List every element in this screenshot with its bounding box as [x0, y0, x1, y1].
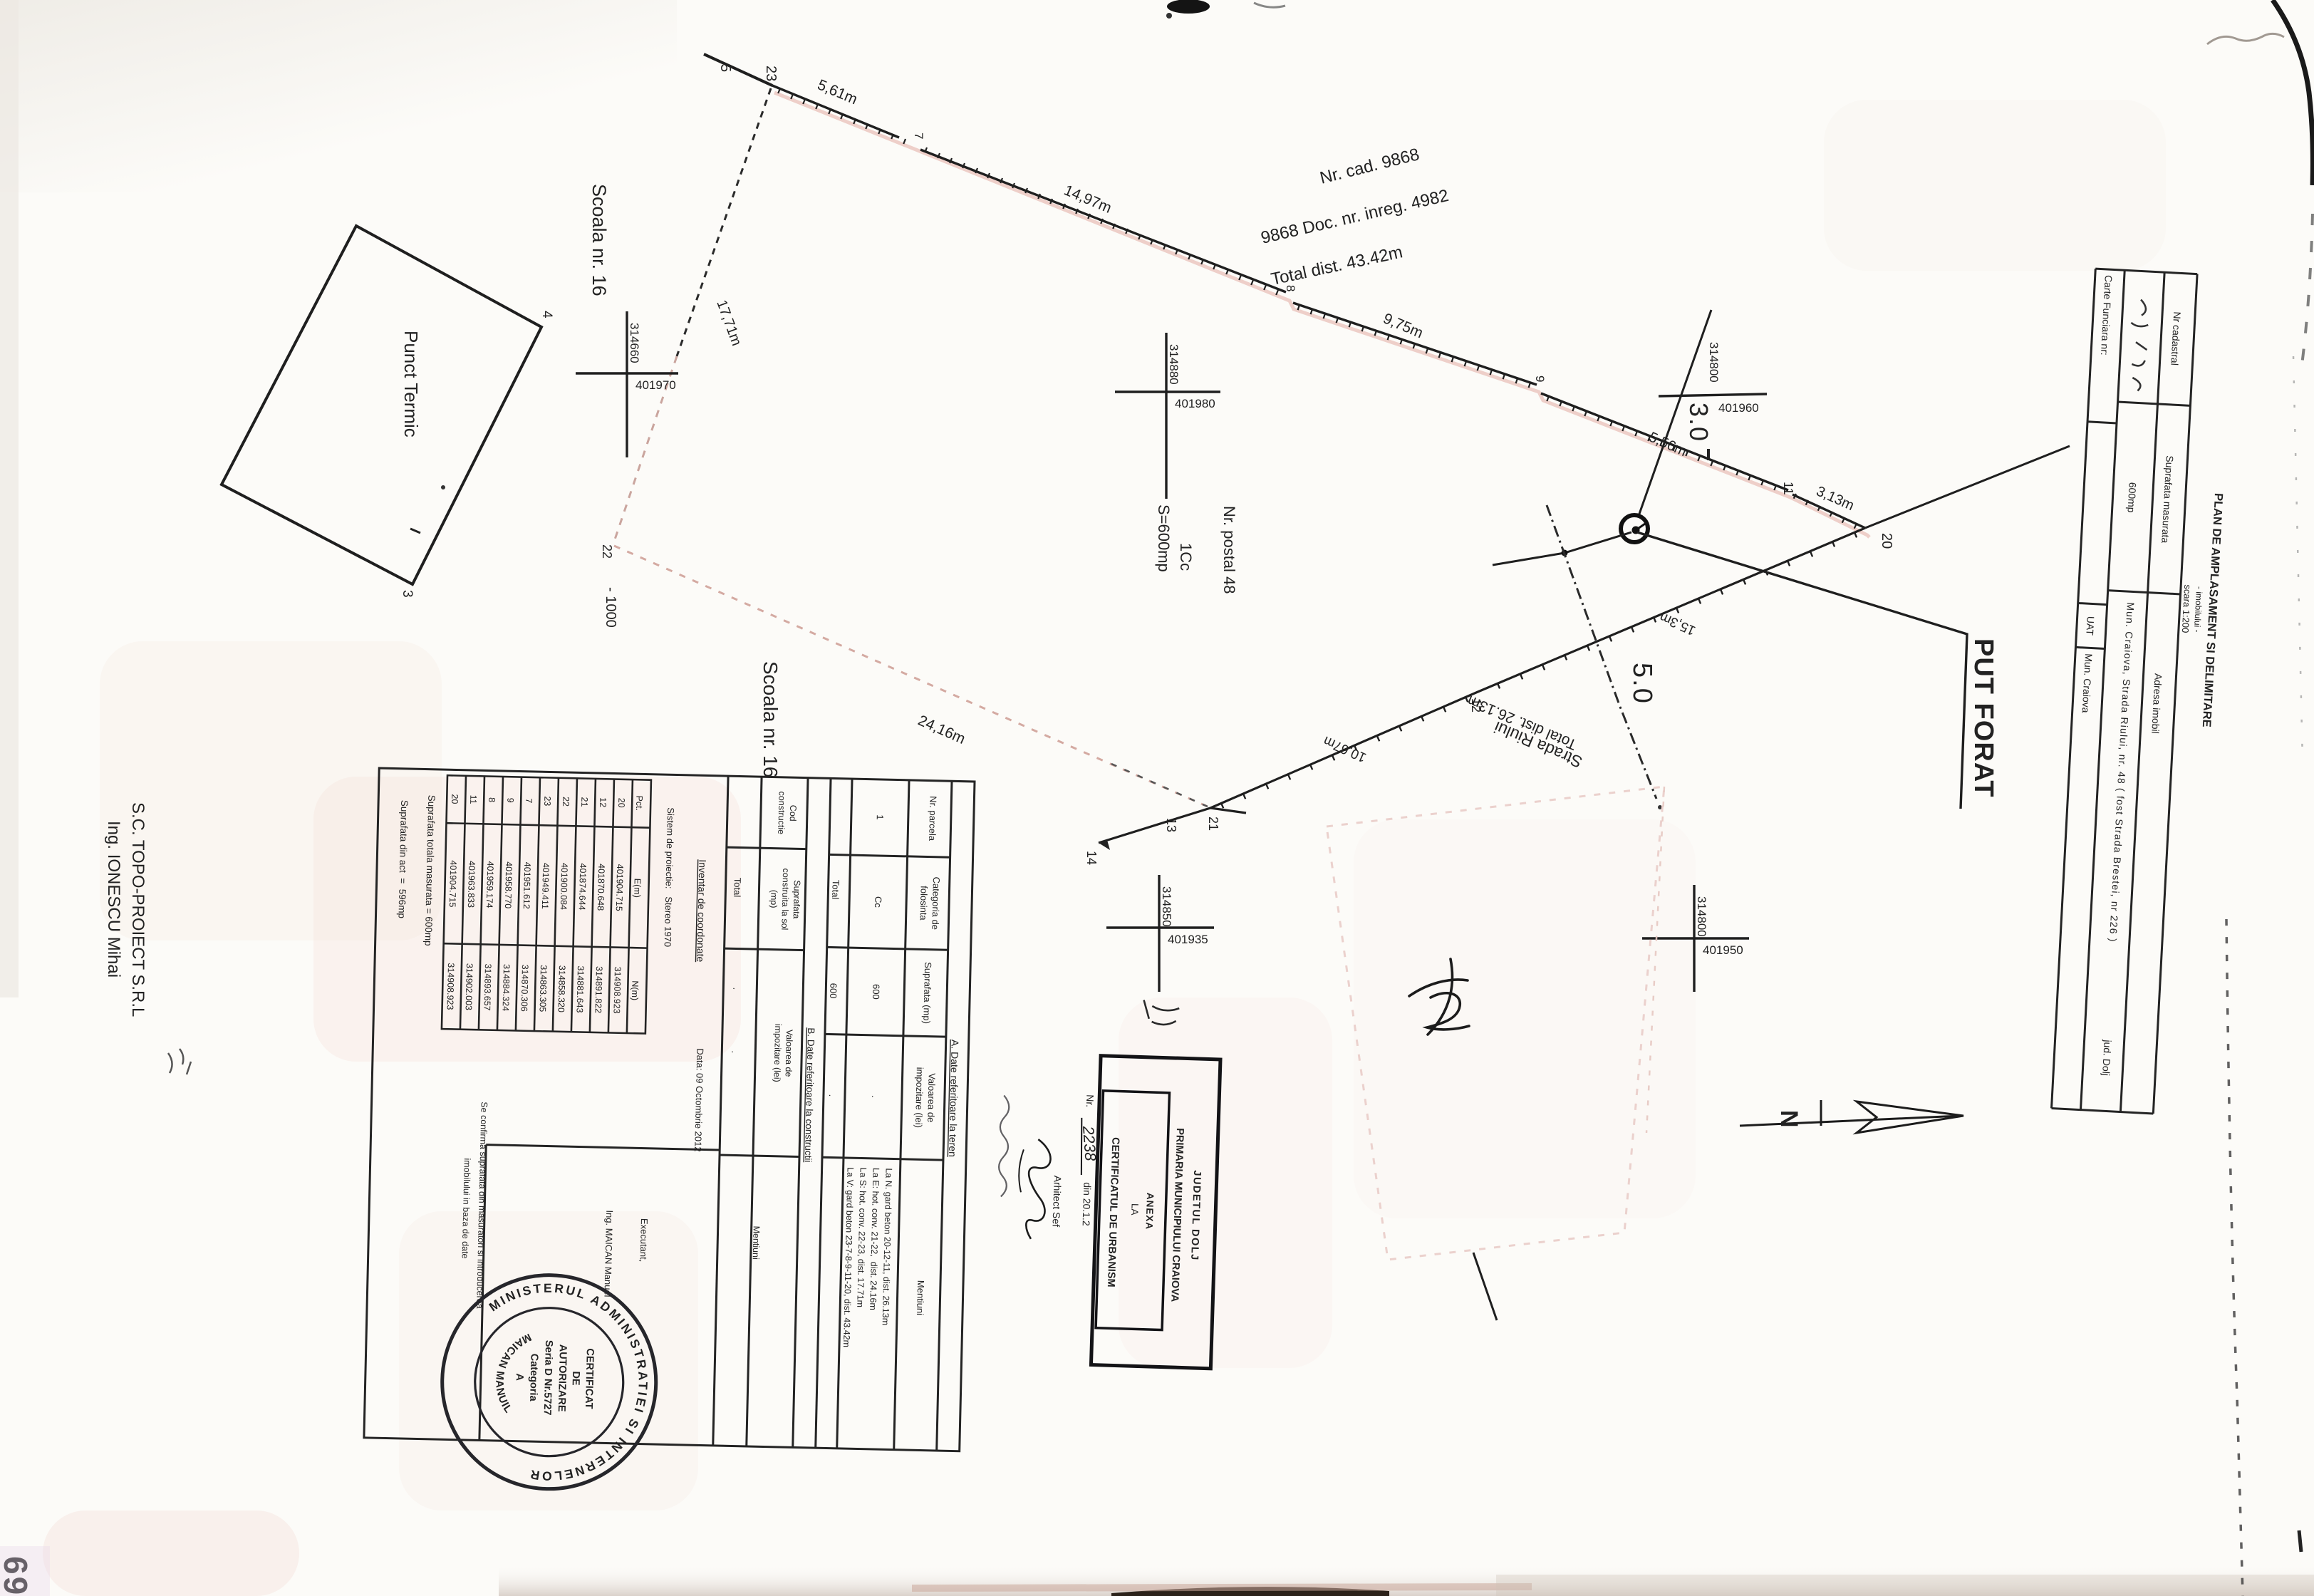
svg-text:7: 7 — [912, 133, 925, 139]
svg-text:Mentiuni: Mentiuni — [751, 1225, 762, 1260]
svg-text:.: . — [730, 1050, 740, 1053]
svg-text:314800: 314800 — [1707, 342, 1721, 383]
svg-text:Mentiuni: Mentiuni — [915, 1280, 926, 1316]
svg-text:401874.644: 401874.644 — [577, 863, 588, 910]
svg-text:Ing. IONESCU Mihai: Ing. IONESCU Mihai — [104, 821, 123, 978]
svg-text:impozitare (lei): impozitare (lei) — [772, 1024, 783, 1082]
svg-text:impozitare (lei): impozitare (lei) — [913, 1067, 925, 1129]
svg-text:314858.320: 314858.320 — [556, 965, 567, 1012]
svg-text:401950: 401950 — [1703, 943, 1743, 957]
svg-text:600: 600 — [871, 984, 881, 1000]
svg-text:314908.923: 314908.923 — [611, 967, 622, 1014]
svg-text:PUT FORAT: PUT FORAT — [1968, 638, 1998, 798]
svg-text:11: 11 — [468, 794, 478, 804]
svg-text:20: 20 — [1879, 533, 1894, 549]
svg-text:20: 20 — [616, 798, 626, 808]
svg-text:jud. Dolj: jud. Dolj — [2100, 1039, 2114, 1076]
svg-text:E(m): E(m) — [632, 879, 643, 898]
svg-text:Nr.: Nr. — [1084, 1094, 1096, 1107]
svg-text:401951.612: 401951.612 — [522, 862, 532, 909]
svg-text:Scoala nr. 16: Scoala nr. 16 — [588, 184, 610, 296]
svg-text:23: 23 — [763, 66, 779, 81]
svg-text:314870.306: 314870.306 — [519, 965, 530, 1012]
svg-text:Arhitect Sef: Arhitect Sef — [1051, 1175, 1064, 1227]
svg-text:Punct Termic: Punct Termic — [400, 331, 422, 437]
svg-text:S.C. TOPO-PROIECT S.R.L: S.C. TOPO-PROIECT S.R.L — [128, 802, 147, 1017]
svg-text:Valoarea de: Valoarea de — [925, 1073, 938, 1122]
svg-text:din 20.1.2: din 20.1.2 — [1081, 1182, 1094, 1226]
svg-text:N: N — [1775, 1110, 1802, 1128]
svg-text:construita la sol: construita la sol — [779, 868, 791, 930]
svg-text:.: . — [731, 988, 742, 990]
svg-text:Cc: Cc — [873, 896, 883, 908]
svg-text:20: 20 — [450, 794, 460, 804]
svg-text:- 1000: - 1000 — [603, 587, 618, 628]
svg-text:.: . — [827, 1094, 838, 1097]
svg-text:Categoria: Categoria — [527, 1354, 540, 1402]
svg-text:314902.003: 314902.003 — [464, 963, 474, 1010]
svg-text:(mp): (mp) — [769, 890, 779, 908]
svg-text:S=600mp: S=600mp — [1155, 504, 1173, 572]
svg-text:401960: 401960 — [1718, 401, 1759, 415]
svg-text:401959.174: 401959.174 — [484, 861, 495, 908]
svg-text:AUTORIZARE: AUTORIZARE — [556, 1344, 569, 1412]
svg-text:Suprafata: Suprafata — [792, 880, 802, 919]
svg-text:Nr. parcela: Nr. parcela — [927, 796, 938, 841]
svg-text:314908.923: 314908.923 — [445, 963, 456, 1010]
svg-text:13: 13 — [1164, 818, 1178, 832]
svg-text:Pct.: Pct. — [634, 795, 644, 811]
svg-text:14: 14 — [1084, 851, 1099, 865]
svg-text:401935: 401935 — [1168, 933, 1208, 946]
svg-text:CERTIFICAT: CERTIFICAT — [583, 1348, 596, 1409]
svg-text:8: 8 — [487, 797, 497, 802]
svg-text:9: 9 — [1533, 375, 1547, 382]
svg-text:3: 3 — [400, 590, 415, 598]
svg-text:11: 11 — [1781, 482, 1795, 495]
svg-text:401904.715: 401904.715 — [614, 864, 625, 911]
svg-text:21: 21 — [1206, 817, 1220, 831]
svg-text:Inventar de coordonate: Inventar de coordonate — [695, 859, 708, 963]
svg-text:401900.084: 401900.084 — [559, 863, 569, 910]
svg-text:ANEXA: ANEXA — [1143, 1193, 1156, 1230]
svg-text:314891.822: 314891.822 — [593, 966, 603, 1013]
svg-text:Ing. MAICAN Manuel: Ing. MAICAN Manuel — [602, 1210, 615, 1297]
svg-text:22: 22 — [561, 797, 571, 807]
svg-text:401963.833: 401963.833 — [466, 861, 477, 908]
svg-text:3.0: 3.0 — [1684, 403, 1713, 442]
svg-text:LA: LA — [1129, 1203, 1141, 1216]
svg-text:22: 22 — [600, 544, 614, 559]
svg-text:314850: 314850 — [1160, 886, 1173, 927]
svg-text:Suprafata (mp): Suprafata (mp) — [921, 962, 933, 1024]
svg-text:Nr. postal 48: Nr. postal 48 — [1220, 506, 1238, 594]
svg-text:7: 7 — [524, 798, 534, 803]
svg-text:9: 9 — [505, 798, 515, 803]
svg-text:Executant,: Executant, — [638, 1218, 650, 1263]
svg-text:401870.648: 401870.648 — [596, 864, 606, 911]
svg-text:401958.770: 401958.770 — [503, 861, 514, 908]
svg-text:314800: 314800 — [1695, 896, 1708, 937]
svg-text:folosinta: folosinta — [918, 886, 930, 921]
svg-text:314880: 314880 — [1167, 344, 1181, 385]
svg-text:5.0: 5.0 — [1627, 663, 1657, 705]
svg-text:4: 4 — [539, 311, 554, 318]
svg-text:5: 5 — [717, 64, 733, 72]
svg-text:constructie: constructie — [776, 791, 787, 834]
svg-text:314884.324: 314884.324 — [501, 964, 512, 1011]
svg-text:Cod: Cod — [788, 805, 799, 822]
svg-text:Total: Total — [830, 880, 841, 900]
svg-text:12: 12 — [598, 797, 608, 807]
svg-text:401970: 401970 — [635, 378, 676, 392]
svg-text:23: 23 — [542, 796, 552, 806]
svg-text:314893.657: 314893.657 — [482, 963, 493, 1010]
svg-text:600mp: 600mp — [2125, 482, 2138, 513]
svg-text:Scoala nr. 16: Scoala nr. 16 — [759, 661, 782, 777]
svg-text:UAT: UAT — [2084, 616, 2096, 636]
svg-text:314660: 314660 — [628, 323, 641, 363]
svg-text:N(m): N(m) — [630, 980, 640, 1000]
svg-text:401980: 401980 — [1175, 397, 1215, 410]
svg-text:1Cc: 1Cc — [1177, 543, 1195, 571]
svg-text:A: A — [514, 1373, 525, 1381]
svg-text:Total: Total — [732, 878, 743, 898]
svg-text:.: . — [870, 1095, 881, 1098]
svg-text:Seria D Nr.5727: Seria D Nr.5727 — [541, 1340, 554, 1416]
svg-text:600: 600 — [828, 983, 839, 999]
svg-text:314881.643: 314881.643 — [574, 965, 585, 1012]
svg-text:1: 1 — [875, 814, 886, 820]
svg-text:Valoarea de: Valoarea de — [784, 1030, 795, 1077]
svg-text:401949.411: 401949.411 — [540, 863, 551, 909]
svg-text:401904.715: 401904.715 — [447, 860, 458, 907]
svg-text:DE: DE — [570, 1371, 581, 1386]
svg-text:314863.305: 314863.305 — [538, 965, 549, 1012]
svg-text:21: 21 — [579, 797, 589, 807]
svg-text:Categoria de: Categoria de — [930, 876, 942, 930]
